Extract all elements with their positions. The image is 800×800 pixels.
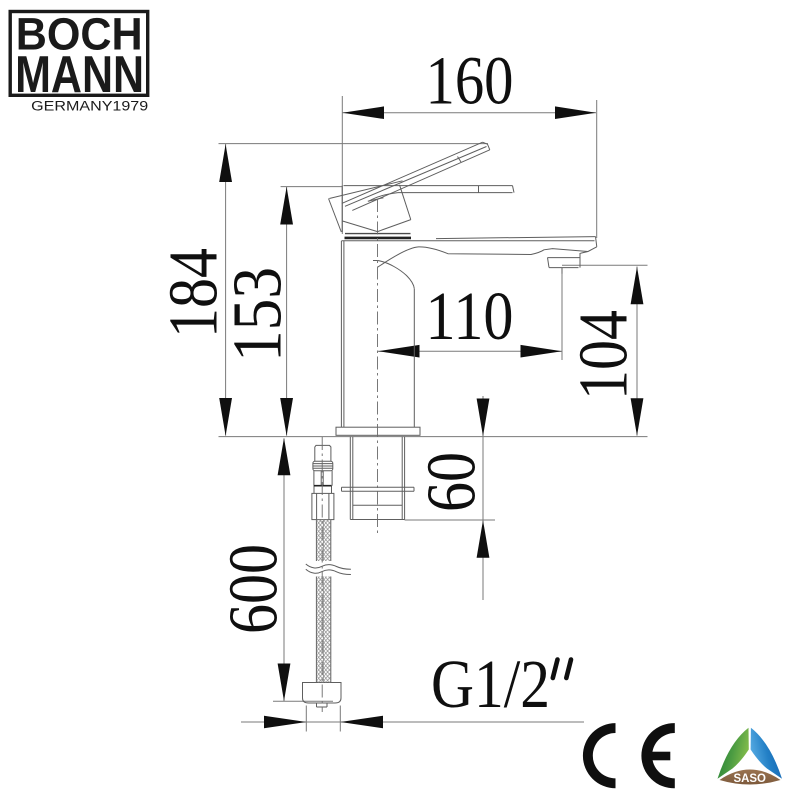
- svg-text:110: 110: [426, 278, 514, 354]
- svg-text:104: 104: [566, 310, 643, 400]
- svg-text:G1/2: G1/2: [431, 646, 550, 722]
- svg-text:GERMANY1979: GERMANY1979: [31, 99, 148, 114]
- svg-text:SASO: SASO: [733, 772, 766, 785]
- svg-text:153: 153: [220, 267, 297, 362]
- svg-text:600: 600: [216, 544, 293, 634]
- svg-text:MANN: MANN: [15, 46, 144, 104]
- svg-text:160: 160: [426, 43, 514, 119]
- svg-text:60: 60: [414, 452, 491, 512]
